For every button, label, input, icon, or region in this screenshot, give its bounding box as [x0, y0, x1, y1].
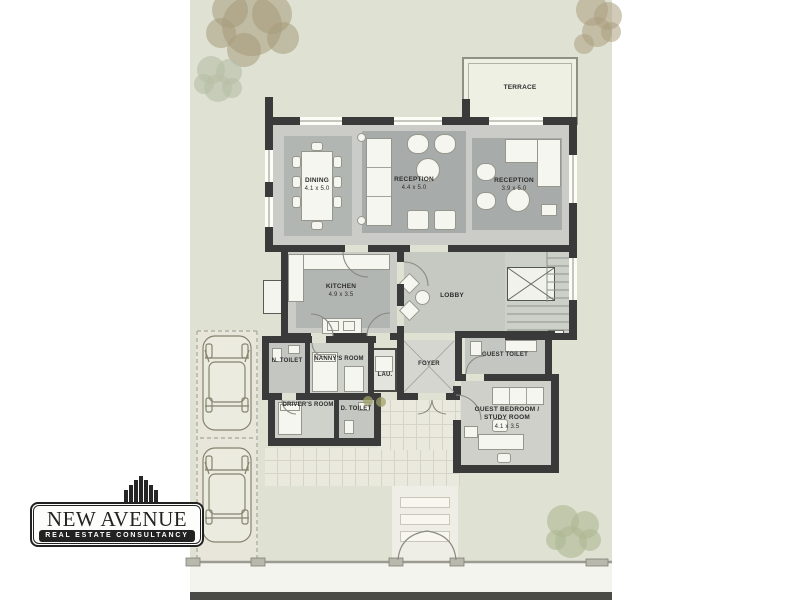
wall-segment: [545, 331, 552, 378]
dining-chair: [292, 156, 301, 168]
wall-segment: [262, 336, 312, 343]
wall-segment: [326, 336, 376, 343]
side-lamp: [357, 133, 366, 142]
sidewalk: [190, 562, 612, 592]
wall-segment: [397, 284, 404, 306]
vanity-counter: [505, 340, 537, 352]
armchair: [407, 134, 429, 154]
wall-segment: [374, 393, 381, 446]
wall-segment: [265, 245, 345, 252]
room-label-foyer: FOYER: [406, 361, 452, 369]
dining-chair: [311, 142, 323, 151]
wall-stub: [462, 99, 470, 117]
guest-sofa: [492, 387, 544, 405]
driveway: [196, 330, 258, 562]
stool: [497, 453, 511, 463]
armchair: [434, 134, 456, 154]
room-label-nanny: NANNY'S ROOM: [307, 356, 371, 364]
dining-chair: [333, 156, 342, 168]
room-label-guest-toilet: GUEST TOILET: [474, 352, 536, 360]
nanny-wardrobe: [344, 366, 364, 392]
entrance-step: [400, 531, 450, 542]
armchair: [407, 210, 429, 230]
sink-basin: [343, 321, 355, 331]
window: [265, 150, 273, 182]
room-label-guest-bedroom: GUEST BEDROOM / STUDY ROOM4.1 x 3.5: [470, 406, 544, 432]
stair-landing: [507, 267, 555, 301]
room-label-lobby: LOBBY: [424, 292, 480, 300]
window: [265, 197, 273, 227]
room-label-reception-center: RECEPTION4.4 x 5.0: [385, 176, 443, 193]
wall-segment: [400, 393, 418, 400]
wall-segment: [397, 252, 404, 262]
wall-stub: [265, 97, 273, 117]
toilet-fixture: [344, 420, 354, 434]
sink-basin: [327, 321, 339, 331]
side-lamp: [357, 216, 366, 225]
wall-segment: [268, 438, 380, 446]
brand-name: NEW AVENUE: [32, 507, 202, 532]
window: [569, 155, 577, 203]
wall-segment: [484, 374, 559, 381]
kitchen-counter: [290, 254, 390, 270]
washer: [375, 356, 393, 372]
courtyard-paving: [378, 400, 460, 450]
entrance-step: [400, 497, 450, 508]
window: [394, 117, 442, 125]
bay-window: [263, 280, 283, 314]
wall-segment: [453, 386, 461, 395]
window: [489, 117, 543, 125]
patio-paving: [265, 448, 460, 486]
sink-fixture: [288, 345, 300, 354]
wall-segment: [296, 393, 376, 400]
logo-frame: NEW AVENUE REAL ESTATE CONSULTANCY: [30, 502, 204, 547]
wall-segment: [265, 117, 273, 252]
window: [300, 117, 342, 125]
room-label-reception-right: RECEPTION3.9 x 5.0: [485, 177, 543, 194]
room-label-dining: DINING4.1 x 5.0: [288, 177, 346, 194]
kitchen-counter-left: [288, 254, 304, 302]
window: [569, 258, 577, 300]
brand-tagline: REAL ESTATE CONSULTANCY: [39, 530, 195, 542]
room-label-terrace: TERRACE: [480, 84, 560, 92]
wall-segment: [397, 336, 404, 400]
buildings-icon: [28, 476, 204, 504]
wall-segment: [305, 343, 310, 395]
wall-segment: [453, 465, 559, 473]
wall-segment: [368, 245, 410, 252]
floor-plan-image: TERRACE DINING4.1 x 5.0 RECEPTION4.4 x 5…: [0, 0, 800, 600]
room-label-d-toilet: D. TOILET: [330, 406, 382, 414]
entrance-step: [400, 514, 450, 525]
dining-chair: [292, 196, 301, 208]
room-label-laundry: LAU.: [372, 372, 398, 380]
wall-segment: [505, 333, 577, 340]
wall-segment: [551, 378, 559, 473]
wall-segment: [262, 336, 269, 398]
wall-segment: [281, 252, 288, 340]
armchair: [434, 210, 456, 230]
dining-chair: [333, 196, 342, 208]
wall-segment: [458, 374, 466, 381]
wall-segment: [368, 343, 374, 395]
armchair: [476, 192, 496, 210]
study-desk: [478, 434, 524, 450]
side-table: [541, 204, 557, 216]
room-label-n-toilet: N. TOILET: [261, 358, 313, 366]
dining-chair: [311, 221, 323, 230]
street-bar: [190, 592, 612, 600]
brand-logo: NEW AVENUE REAL ESTATE CONSULTANCY: [28, 476, 204, 546]
room-label-kitchen: KITCHEN4.9 x 3.5: [312, 283, 370, 300]
wall-segment: [448, 245, 577, 252]
